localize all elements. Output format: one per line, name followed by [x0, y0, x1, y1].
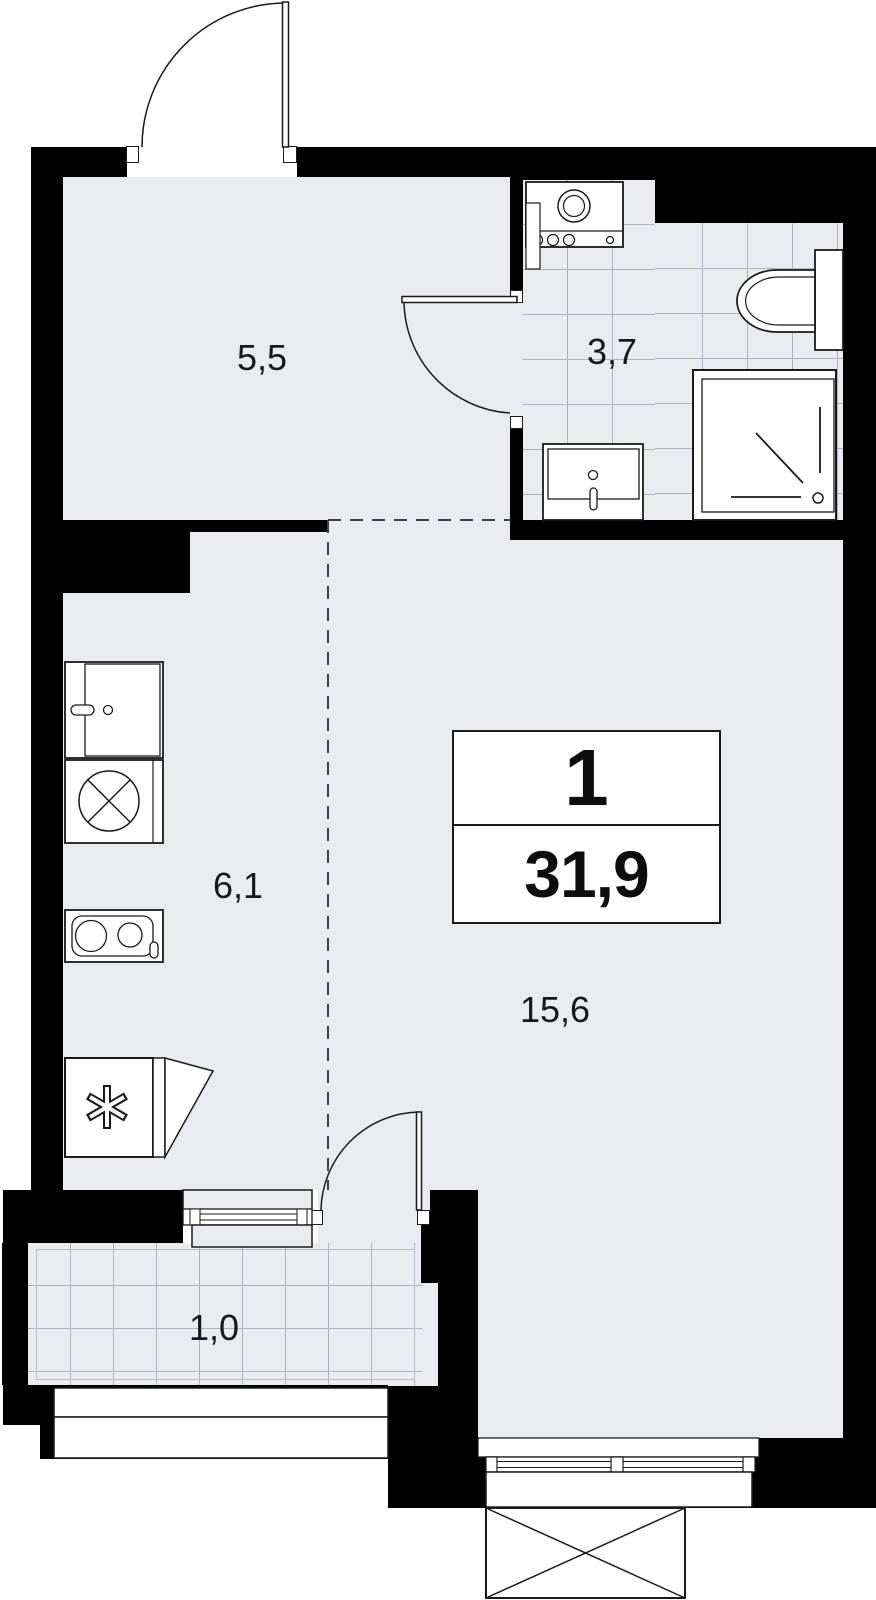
balcony-door-arc [321, 1112, 419, 1210]
bathroom-door-leaf [402, 297, 517, 303]
exterior-unit [486, 1508, 685, 1598]
burner-hob [65, 910, 163, 962]
kitchen-area-label: 6,1 [213, 865, 263, 907]
shower [693, 370, 836, 520]
washing-machine [526, 182, 623, 269]
unit-info-box: 1 31,9 [452, 730, 721, 924]
main-window [478, 1438, 759, 1507]
balcony-door-leaf [417, 1112, 422, 1210]
fridge [65, 1058, 213, 1157]
balcony-window-sill [192, 1225, 312, 1247]
balcony-window [183, 1190, 312, 1247]
entry-door-arc [142, 3, 286, 147]
bathroom-door-arc [404, 300, 510, 413]
toilet [737, 250, 843, 350]
balcony-door [321, 1112, 422, 1210]
stove [65, 760, 163, 843]
entry-door-leaf [283, 2, 289, 147]
total-area: 31,9 [454, 826, 719, 922]
fixtures-overlay [0, 0, 876, 1600]
shower-drain [813, 493, 823, 503]
balcony-area-label: 1,0 [189, 1307, 239, 1349]
bathroom-area-label: 3,7 [587, 331, 637, 373]
balcony-railing [54, 1388, 388, 1458]
toilet-bowl [737, 270, 815, 332]
living-room-area-label: 15,6 [520, 989, 590, 1031]
towel-rail [526, 203, 540, 269]
main-window-sill [486, 1472, 752, 1507]
rooms-count: 1 [454, 732, 719, 826]
toilet-tank [815, 250, 843, 350]
floor-plan: 5,5 3,7 6,1 15,6 1,0 1 31,9 [0, 0, 876, 1600]
hallway-area-label: 5,5 [237, 337, 287, 379]
fridge-door [153, 1058, 165, 1157]
bathroom-sink [543, 444, 643, 520]
bathroom-door [402, 297, 517, 414]
entry-door [142, 2, 289, 147]
kitchen-sink [65, 662, 163, 758]
fridge-door-open [165, 1058, 213, 1157]
